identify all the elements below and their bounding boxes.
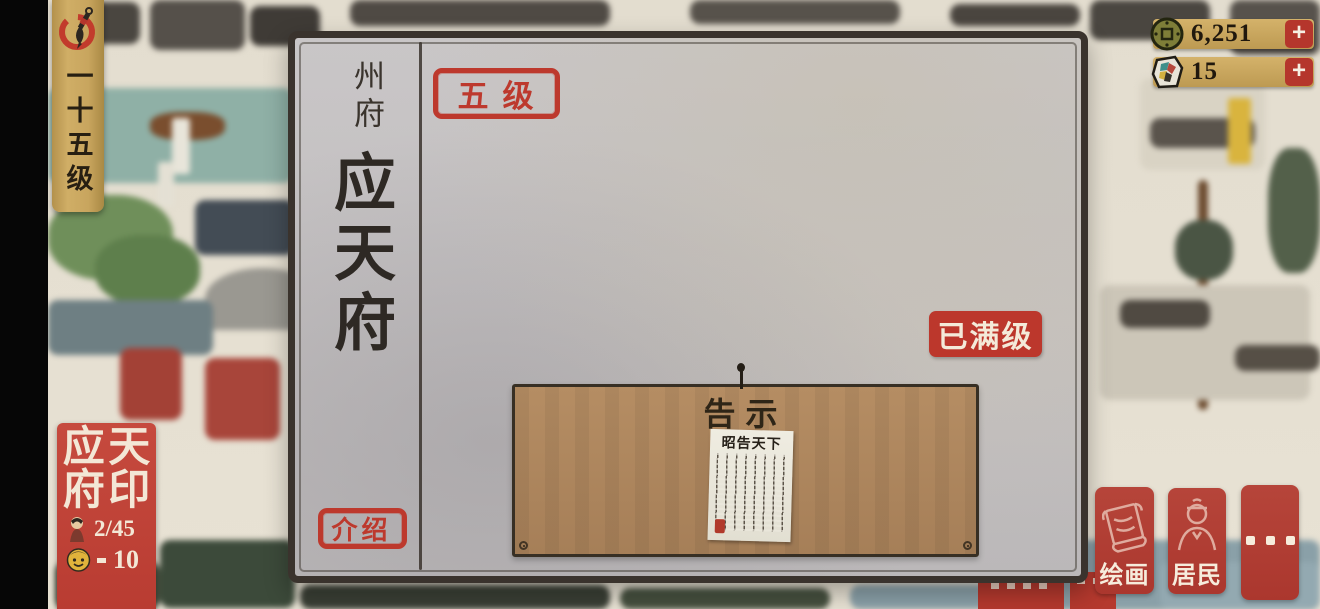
- red-seal-icon: [715, 519, 725, 533]
- painting-stone-icon: [1149, 54, 1185, 90]
- stones-value: 15: [1191, 58, 1218, 86]
- scene-tree: [95, 235, 200, 305]
- ink-brush-icon: [56, 6, 100, 54]
- scene-tree: [620, 588, 830, 609]
- notice-paper[interactable]: 昭告天下: [707, 429, 793, 542]
- residents-counter: 2/45: [57, 515, 156, 543]
- scene-canal: [48, 300, 213, 355]
- villager-icon: [65, 515, 89, 543]
- scene-patch: [350, 0, 610, 26]
- scene-roof: [1235, 345, 1320, 371]
- residents-button[interactable]: 居民: [1168, 488, 1226, 594]
- scene-roof: [1120, 300, 1210, 328]
- max-level-badge: 已满级: [929, 311, 1042, 357]
- residents-count: 2/45: [94, 516, 135, 542]
- currency-stones-bar: 15 +: [1153, 57, 1314, 87]
- panel-divider: [419, 42, 422, 570]
- copper-coin-icon: [1149, 16, 1185, 52]
- scene-pine: [1268, 148, 1320, 273]
- scene-roof: [160, 540, 295, 608]
- happiness-counter: 10: [57, 545, 156, 575]
- screw-icon: [963, 541, 972, 550]
- city-name-title: 应天府: [313, 150, 403, 360]
- player-level-text: 一十五级: [59, 62, 98, 198]
- scene-flag: [158, 162, 174, 206]
- scene-patch: [150, 0, 245, 50]
- scene-tree: [300, 585, 610, 609]
- happiness-count: 10: [113, 545, 139, 575]
- add-stones-button[interactable]: +: [1285, 58, 1313, 86]
- residents-label: 居民: [1172, 555, 1222, 590]
- more-options-button[interactable]: [1241, 485, 1299, 600]
- more-dots-icon: [1246, 485, 1295, 596]
- game-screen: 一十五级 6,251 + 15 + 州府 应天府 五级 已满级 介绍: [0, 0, 1320, 609]
- city-seal-characters: 应 天 府 印: [57, 423, 156, 513]
- player-level-banner[interactable]: 一十五级: [52, 0, 104, 212]
- notice-board-title: 告示: [515, 389, 976, 435]
- notice-paper-body: [715, 453, 786, 532]
- add-coins-button[interactable]: +: [1285, 20, 1313, 48]
- scene-red-arch: [120, 348, 182, 420]
- coins-value: 6,251: [1191, 20, 1252, 48]
- scroll-painting-icon: [1102, 497, 1148, 555]
- resident-person-icon: [1173, 498, 1221, 556]
- smiley-face-icon: [65, 546, 92, 573]
- currency-coins-bar: 6,251 +: [1153, 19, 1314, 49]
- screw-icon: [519, 541, 528, 550]
- scene-red-arch: [205, 358, 280, 440]
- painting-label: 绘画: [1100, 555, 1150, 590]
- city-category-label: 州府: [325, 60, 389, 134]
- notice-board: 告示 昭告天下: [512, 384, 979, 557]
- tiny-dash: [97, 558, 106, 563]
- city-level-badge: 五级: [433, 68, 560, 119]
- letterbox-bar: [0, 0, 48, 609]
- scene-tree: [1175, 220, 1233, 280]
- scene-yellow-flag: [1228, 98, 1251, 164]
- intro-button[interactable]: 介绍: [318, 508, 407, 549]
- scene-patch: [950, 4, 1080, 26]
- city-info-panel: 州府 应天府 五级 已满级 介绍 告示 昭告天下: [288, 31, 1088, 583]
- painting-button[interactable]: 绘画: [1095, 487, 1154, 594]
- city-seal-stamp[interactable]: 应 天 府 印 2/45 10: [57, 423, 156, 609]
- pin-icon: [737, 363, 745, 389]
- scene-patch: [690, 0, 900, 24]
- scene-flag: [172, 118, 190, 174]
- scene-roof: [195, 200, 295, 255]
- notice-paper-title: 昭告天下: [715, 432, 789, 454]
